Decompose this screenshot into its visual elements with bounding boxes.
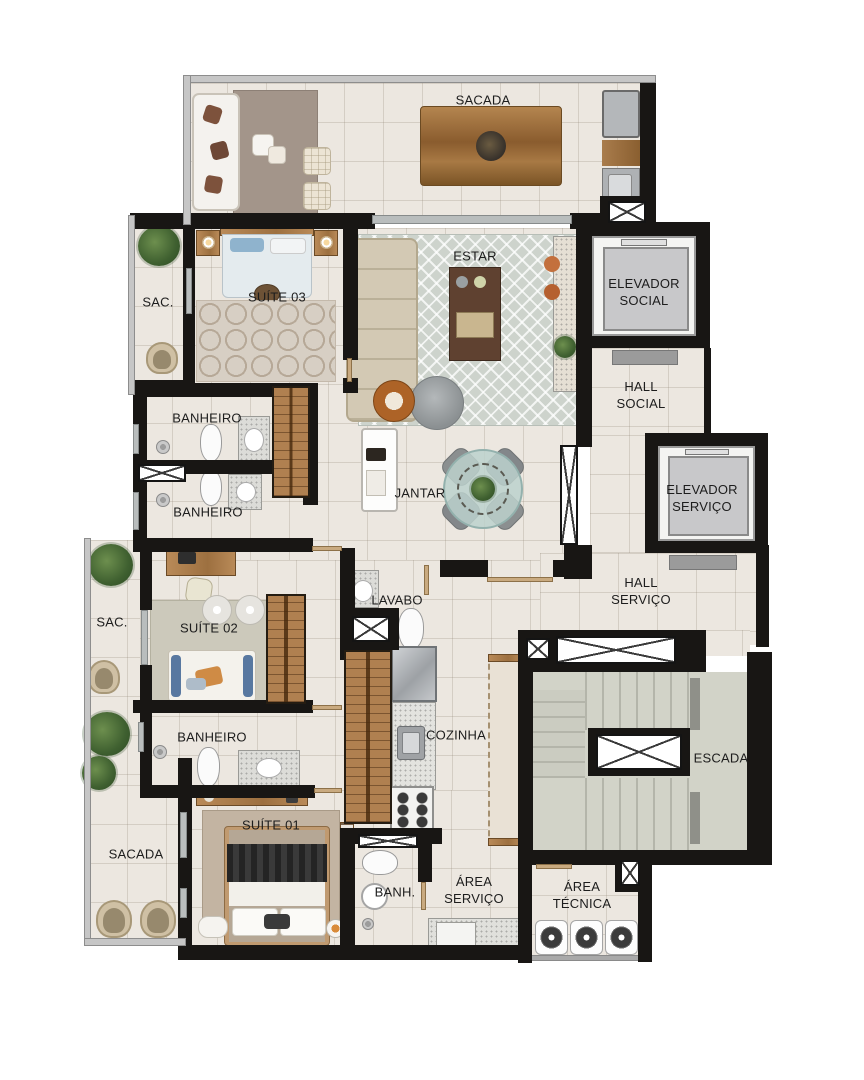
wicker-chair [146,342,178,374]
barbecue-grill [602,90,640,138]
wardrobe-suite02 [266,594,306,704]
floor-plan: SACADA SAC. SUÍTE 03 ESTAR ELEVADOR SOCI… [0,0,864,1080]
window [180,888,187,918]
balcony-railing [84,938,186,946]
room-label-suite-01: SUÍTE 01 [242,818,300,835]
door-suite01 [314,788,342,793]
stairs-landing-steps [533,690,585,778]
room-label-lavabo: LAVABO [371,593,422,610]
desk-laptop [178,552,196,564]
room-label-sacada-bottom: SACADA [109,847,164,864]
room-label-estar: ESTAR [453,249,496,266]
wicker-chair [88,660,120,694]
coffee-machine [366,448,386,461]
room-label-area-tecnica: ÁREA TÉCNICA [553,879,611,913]
toilet [197,747,220,787]
orange-side-table [373,380,415,422]
room-label-escada: ESCADA [694,751,749,768]
pantry-cap [488,654,522,662]
wall [140,665,152,700]
elevator-servico-door [685,449,729,455]
room-label-elevador-servico: ELEVADOR SERVIÇO [666,482,737,516]
table-centerpiece-plant [471,477,495,501]
bed-suite01-throw [227,844,327,882]
bed-suite01-sheet [229,882,325,906]
wall [140,552,152,610]
shower-box [358,834,418,848]
bar-tray [366,470,386,496]
sink-basin [353,580,373,602]
sink-basin [244,428,264,452]
ac-condenser-unit [605,920,638,955]
balcony-railing [84,538,91,946]
wall [553,560,592,577]
wicker-chair [140,900,176,938]
stair-wall-left [518,630,533,865]
room-label-hall-servico: HALL SERVIÇO [611,575,671,609]
stairs-handrail [690,792,700,844]
room-label-sac-mid: SAC. [96,615,127,632]
wall [343,213,358,360]
balcony-railing [183,75,656,83]
balcony-railing [183,75,191,225]
room-label-suite-02: SUÍTE 02 [180,621,238,638]
door-servico [487,577,553,582]
door-suite03 [347,358,352,382]
sliding-glass-door [372,215,572,224]
bed-pillow [186,678,206,690]
duct-shaft [138,464,186,482]
wall [440,560,488,577]
balcony-railing [128,215,135,395]
table-lamp [320,236,333,249]
wall [133,538,313,552]
ottoman [303,182,331,210]
kitchen-sink-basin [402,732,420,754]
pouf [235,595,265,625]
wicker-chair [96,900,132,938]
bed-bolster [171,655,181,697]
ottoman [303,147,331,175]
entry-door [560,445,578,545]
door-lavabo [424,565,429,595]
wardrobe-suite01 [344,650,392,824]
door-suite02 [312,546,342,551]
round-pouf [410,376,464,430]
window [133,492,139,530]
vase [544,256,560,272]
grill-sink-basin [608,174,632,198]
shower-head [156,493,170,507]
room-label-area-servico: ÁREA SERVIÇO [444,874,504,908]
stove [390,786,434,830]
wall [130,213,375,229]
table-lamp [202,236,215,249]
stair-wall-right [747,652,772,865]
duct-shaft [608,201,646,223]
stairs-lower-flight [585,778,689,850]
room-label-banheiro-1: BANHEIRO [172,411,242,428]
elevator-doormat [612,350,678,365]
duct-shaft [526,638,550,660]
potted-plant [89,544,133,586]
window [138,722,144,752]
shower-head [362,918,374,930]
vase [544,284,560,300]
stair-wall-bottom [518,850,772,865]
bed-pillow-accent [264,914,290,929]
window [133,424,139,454]
shower-head [153,745,167,759]
sink-basin [236,482,256,502]
toilet [362,850,398,875]
room-label-elevador-social: ELEVADOR SOCIAL [608,276,679,310]
room-label-hall-social: HALL SOCIAL [617,379,666,413]
rug-suite03 [196,300,336,382]
bed-pillow [270,238,306,254]
room-label-cozinha: COZINHA [426,728,486,745]
wall [340,844,355,960]
nesting-table [268,146,286,164]
toilet [200,470,222,506]
toilet [398,608,424,650]
coffee-table-tray [456,312,494,338]
wall [140,785,315,798]
bed-bolster [243,655,253,697]
door-banh [421,882,426,910]
sliding-glass-door [180,812,187,858]
floor-plant [554,336,576,358]
pantry-cabinet [488,654,522,846]
floor-stair-corner [703,630,750,656]
bed-pillow [230,238,264,252]
table-centerpiece [476,131,506,161]
refrigerator [391,646,437,702]
toilet [200,424,222,462]
ac-condenser-unit [535,920,568,955]
tech-area-grate [530,955,650,961]
stair-shaft [596,734,682,770]
duct-shaft [352,616,390,642]
fire-door-stairs [556,636,676,664]
room-label-jantar: JANTAR [395,486,446,503]
door-area-tecnica [536,864,572,869]
pantry-cap [488,838,522,846]
room-label-banh: BANH. [375,885,416,902]
ac-condenser-unit [570,920,603,955]
coffee-table-decor [456,276,468,288]
wardrobe-banheiros [272,386,310,498]
room-label-suite-03: SUÍTE 03 [248,290,306,307]
wall [704,348,711,435]
elevator-doormat [669,555,737,570]
sofa-pillow [204,175,224,195]
coffee-table-plant [474,276,486,288]
room-label-sacada-top: SACADA [456,93,511,110]
window [186,268,192,314]
elevator-social-door [621,239,667,246]
sink-basin [256,758,282,778]
floor-hall-corridor [590,435,647,555]
room-label-sac-top: SAC. [142,295,173,312]
room-label-banheiro-2: BANHEIRO [173,505,243,522]
stairs-handrail [690,678,700,730]
room-label-banheiro-3: BANHEIRO [177,730,247,747]
shower-head [156,440,170,454]
wall [576,228,592,447]
duct-shaft [620,860,640,886]
bench [198,916,228,938]
laundry-sink [436,922,476,946]
grill-counter-wood [602,140,640,166]
wall [756,545,769,647]
stairs-upper-flight [585,672,689,730]
potted-plant [138,226,180,266]
sliding-glass-door [141,610,148,665]
door-banheiro [312,705,342,710]
wall [418,832,432,882]
